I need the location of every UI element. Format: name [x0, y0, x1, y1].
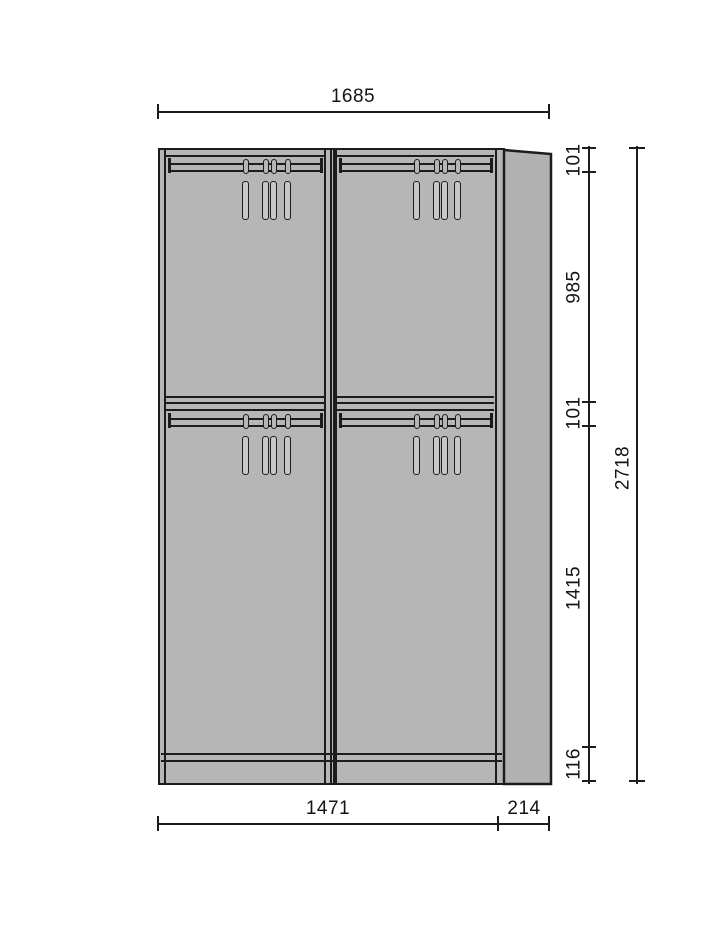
rail-endcap [168, 413, 171, 428]
dim-tick [157, 104, 159, 119]
dim-label-seg-116: 116 [565, 748, 584, 780]
hanger-clip [285, 414, 291, 429]
shelf-right [337, 396, 494, 411]
hanger-clip [442, 414, 448, 429]
dim-line-bottom [158, 823, 550, 825]
hanger-bar [441, 181, 448, 220]
shelf-edge-line [166, 402, 324, 404]
dim-tick [548, 104, 550, 119]
dim-label-seg-985: 985 [565, 270, 584, 303]
hanger-bar [262, 436, 269, 475]
hanger-clip [271, 414, 277, 429]
dim-line-top-width [158, 111, 550, 113]
hanger-clip [434, 159, 440, 174]
dim-tick [157, 816, 159, 831]
hanger-bar [441, 436, 448, 475]
rail-endcap [168, 158, 171, 173]
hanger-clip [442, 159, 448, 174]
shelf-left [166, 396, 324, 411]
hanger-clip [434, 414, 440, 429]
hanger-bar [454, 181, 461, 220]
hanger-clip [455, 414, 461, 429]
hanger-bar [284, 181, 291, 220]
hanger-bar [242, 181, 249, 220]
center-divider-core [330, 150, 335, 783]
hanger-clip [243, 159, 249, 174]
center-divider [324, 150, 337, 783]
right-wall-inner-line [495, 150, 497, 783]
hanger-bar [433, 181, 440, 220]
hanger-clip [263, 414, 269, 429]
hanger-clip [285, 159, 291, 174]
dim-tick [629, 147, 645, 149]
dim-tick [629, 780, 645, 782]
hanger-bar [454, 436, 461, 475]
hanger-bar [413, 181, 420, 220]
hanger-bar [413, 436, 420, 475]
plinth-board [161, 753, 502, 762]
drawing-canvas: 1685 [0, 0, 709, 935]
top-panel-line-right [337, 155, 494, 157]
hanger-clip [414, 159, 420, 174]
hanger-clip [414, 414, 420, 429]
rail-endcap [320, 158, 323, 173]
hanger-bar [433, 436, 440, 475]
dim-label-seg-101-lower: 101 [565, 396, 584, 429]
hanger-bar [270, 436, 277, 475]
top-panel-line-left [166, 155, 324, 157]
dim-tick [582, 780, 596, 782]
hanger-bar [242, 436, 249, 475]
dim-label-top-width: 1685 [303, 87, 403, 106]
hanger-clip [243, 414, 249, 429]
rail-endcap [490, 413, 493, 428]
left-wall-inner-line [164, 150, 166, 783]
hanger-clip [455, 159, 461, 174]
side-panel-shape [504, 150, 551, 784]
hanger-clip [271, 159, 277, 174]
dim-line-overall-height [636, 146, 638, 784]
rail-endcap [339, 158, 342, 173]
rail-endcap [339, 413, 342, 428]
dim-label-seg-101-upper: 101 [565, 143, 584, 176]
dim-tick [497, 816, 499, 831]
dim-label-bottom-main-width: 1471 [278, 799, 378, 818]
rail-endcap [320, 413, 323, 428]
dim-label-bottom-side-width: 214 [484, 799, 564, 818]
dim-label-overall-height: 2718 [614, 446, 633, 490]
hanger-clip [263, 159, 269, 174]
dim-label-seg-1415: 1415 [565, 566, 584, 610]
hanger-bar [262, 181, 269, 220]
hanger-bar [270, 181, 277, 220]
dim-line-right-chain [588, 146, 590, 784]
rail-endcap [490, 158, 493, 173]
dim-tick [548, 816, 550, 831]
hanger-bar [284, 436, 291, 475]
shelf-edge-line [337, 402, 494, 404]
